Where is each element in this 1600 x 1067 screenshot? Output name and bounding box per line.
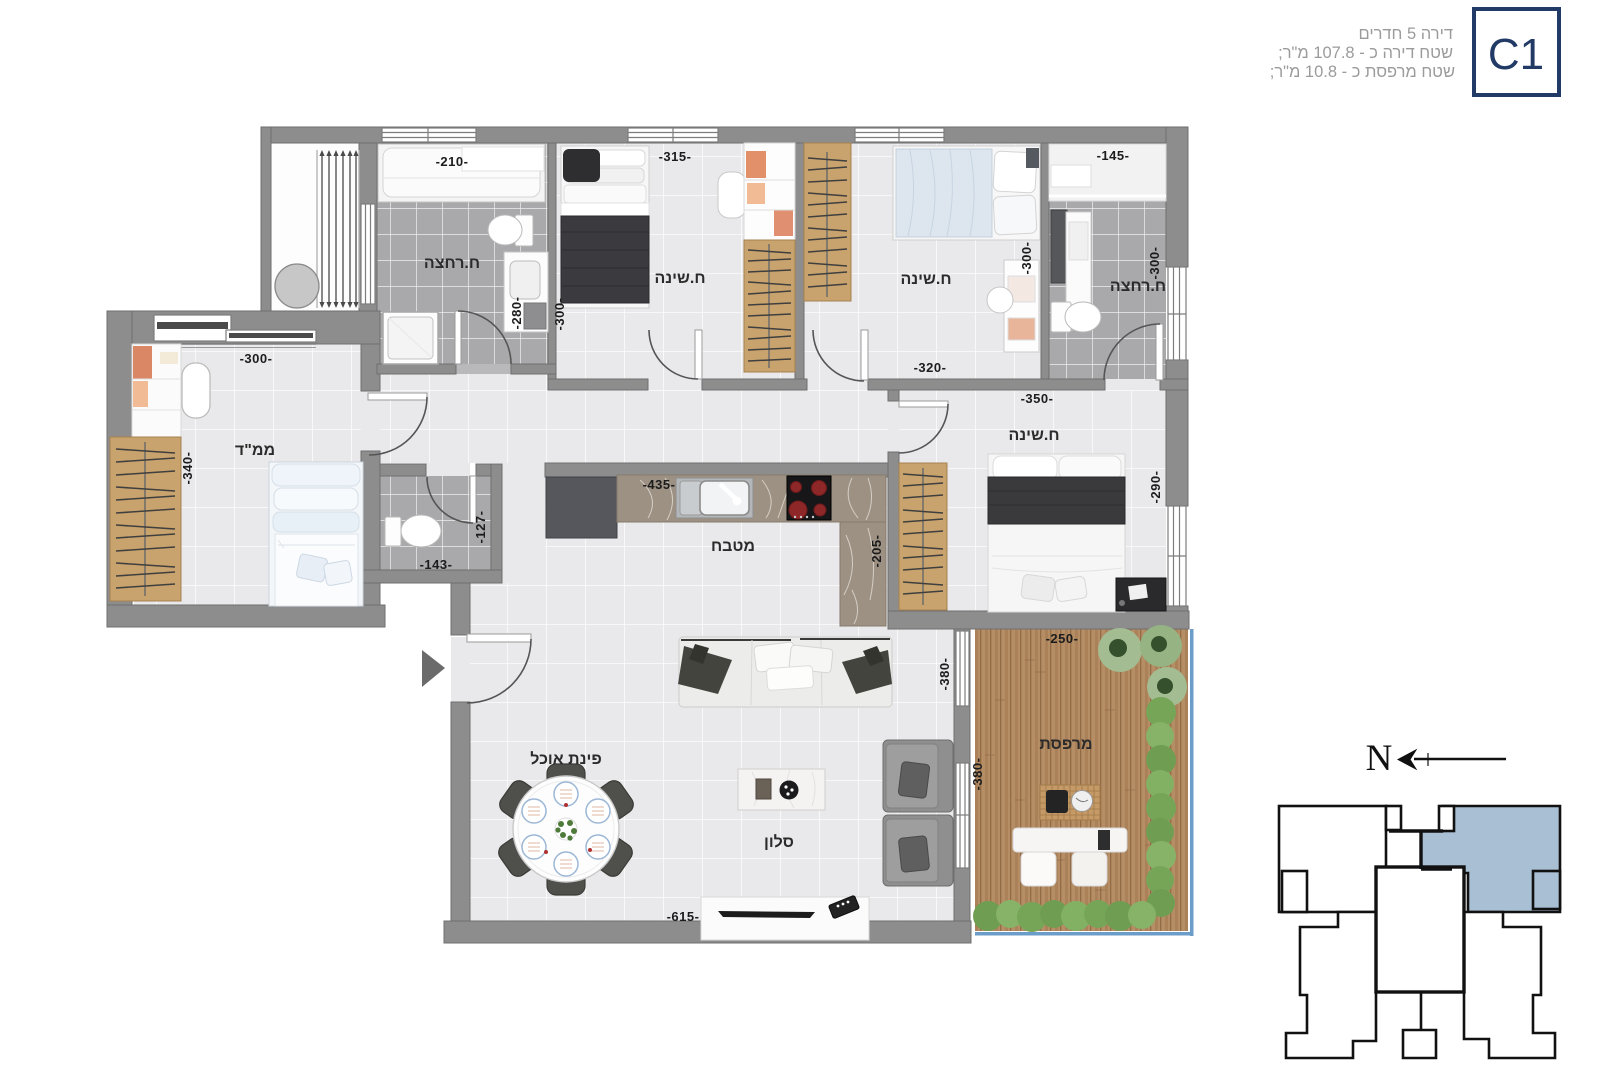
svg-text:-300-: -300- <box>1147 247 1162 280</box>
svg-text:-615-: -615- <box>667 909 700 924</box>
svg-text:מרפסת: מרפסת <box>1039 736 1092 753</box>
svg-text:ח.שינה: ח.שינה <box>1008 427 1059 444</box>
svg-text:-380-: -380- <box>970 758 985 791</box>
svg-text:-290-: -290- <box>1148 471 1163 504</box>
svg-text:שטח דירה כ - 107.8 מ"ר;: שטח דירה כ - 107.8 מ"ר; <box>1278 44 1453 62</box>
svg-text:-340-: -340- <box>180 452 195 485</box>
svg-text:מטבח: מטבח <box>711 538 755 555</box>
svg-text:-210-: -210- <box>436 154 469 169</box>
svg-text:-280-: -280- <box>509 297 524 330</box>
svg-text:-435-: -435- <box>643 477 676 492</box>
svg-text:-250-: -250- <box>1046 631 1079 646</box>
svg-text:-300-: -300- <box>1019 242 1034 275</box>
svg-text:-127-: -127- <box>473 511 488 544</box>
svg-text:סלון: סלון <box>764 833 794 851</box>
svg-text:-320-: -320- <box>914 360 947 375</box>
svg-text:ח.שינה: ח.שינה <box>900 271 951 288</box>
svg-text:-145-: -145- <box>1097 148 1130 163</box>
svg-text:שטח מרפסת כ - 10.8 מ"ר;: שטח מרפסת כ - 10.8 מ"ר; <box>1270 63 1455 81</box>
svg-text:-350-: -350- <box>1021 391 1054 406</box>
svg-text:-380-: -380- <box>937 658 952 691</box>
svg-text:ח.רחצה: ח.רחצה <box>1110 278 1166 295</box>
svg-text:דירה 5 חדרים: דירה 5 חדרים <box>1358 25 1453 43</box>
svg-text:ח.רחצה: ח.רחצה <box>424 255 480 272</box>
svg-text:-300-: -300- <box>240 351 273 366</box>
svg-text:ח.שינה: ח.שינה <box>654 270 705 287</box>
svg-text:-205-: -205- <box>869 535 884 568</box>
svg-text:ממ"ד: ממ"ד <box>235 442 275 459</box>
svg-text:C1: C1 <box>1488 30 1544 79</box>
svg-text:-315-: -315- <box>659 149 692 164</box>
svg-text:-143-: -143- <box>420 557 453 572</box>
svg-text:N: N <box>1366 738 1393 779</box>
svg-text:פינת אוכל: פינת אוכל <box>530 750 602 768</box>
svg-text:-300-: -300- <box>552 298 567 331</box>
